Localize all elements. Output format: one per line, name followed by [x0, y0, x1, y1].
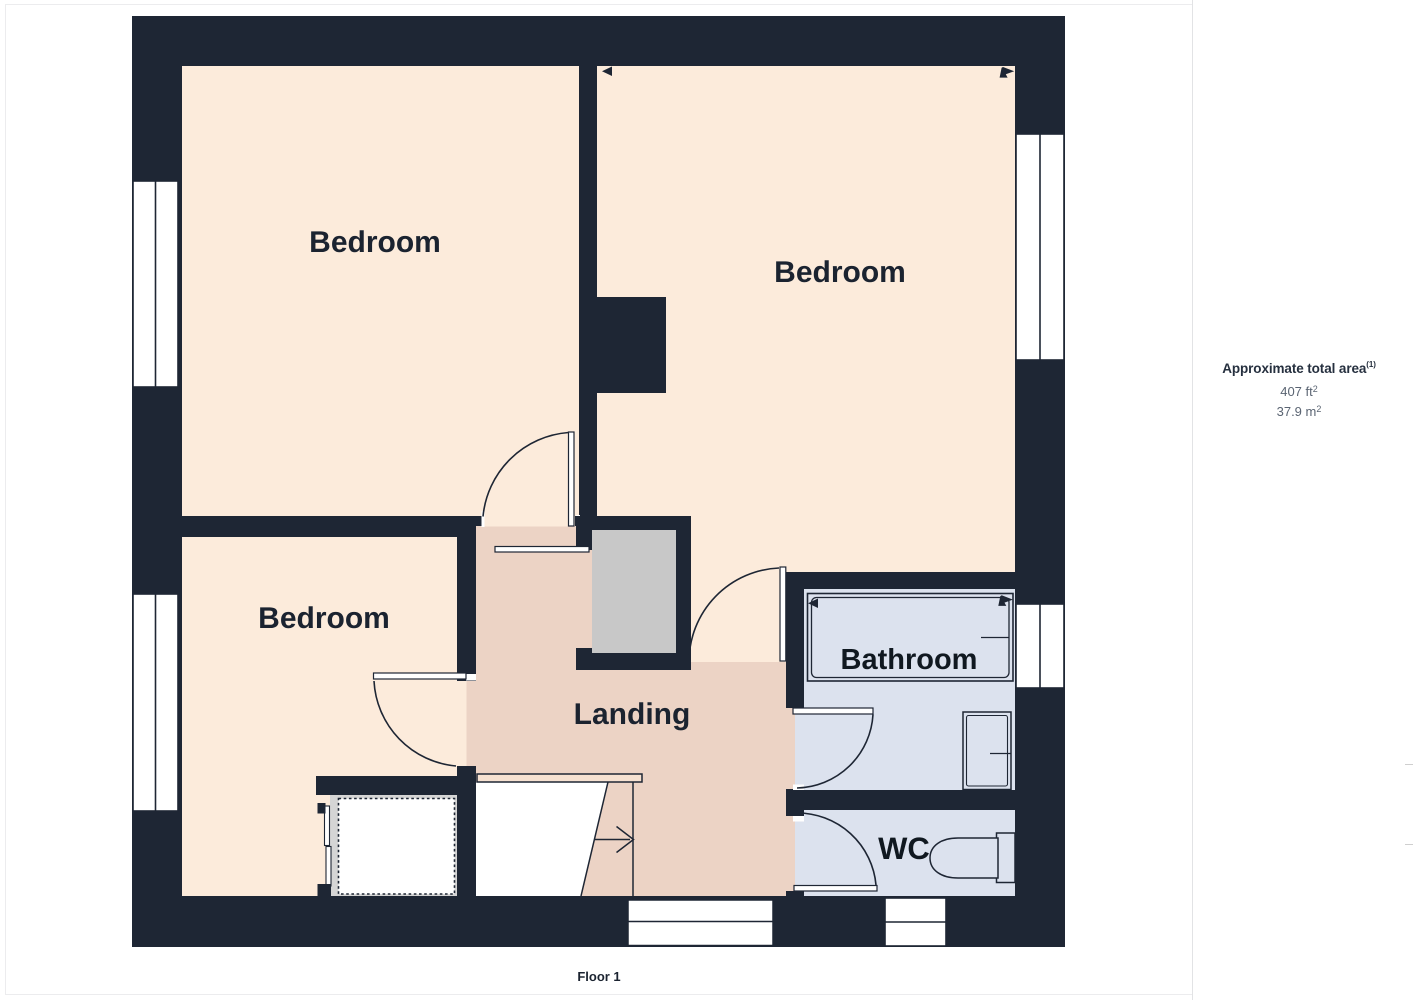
svg-text:Bedroom: Bedroom [258, 602, 390, 635]
svg-text:Floor 1: Floor 1 [577, 969, 620, 984]
svg-text:Bedroom: Bedroom [774, 256, 906, 289]
svg-text:Bedroom: Bedroom [309, 226, 441, 259]
svg-text:WC: WC [878, 831, 930, 866]
svg-text:Landing: Landing [574, 698, 691, 731]
svg-text:Bathroom: Bathroom [841, 644, 978, 676]
